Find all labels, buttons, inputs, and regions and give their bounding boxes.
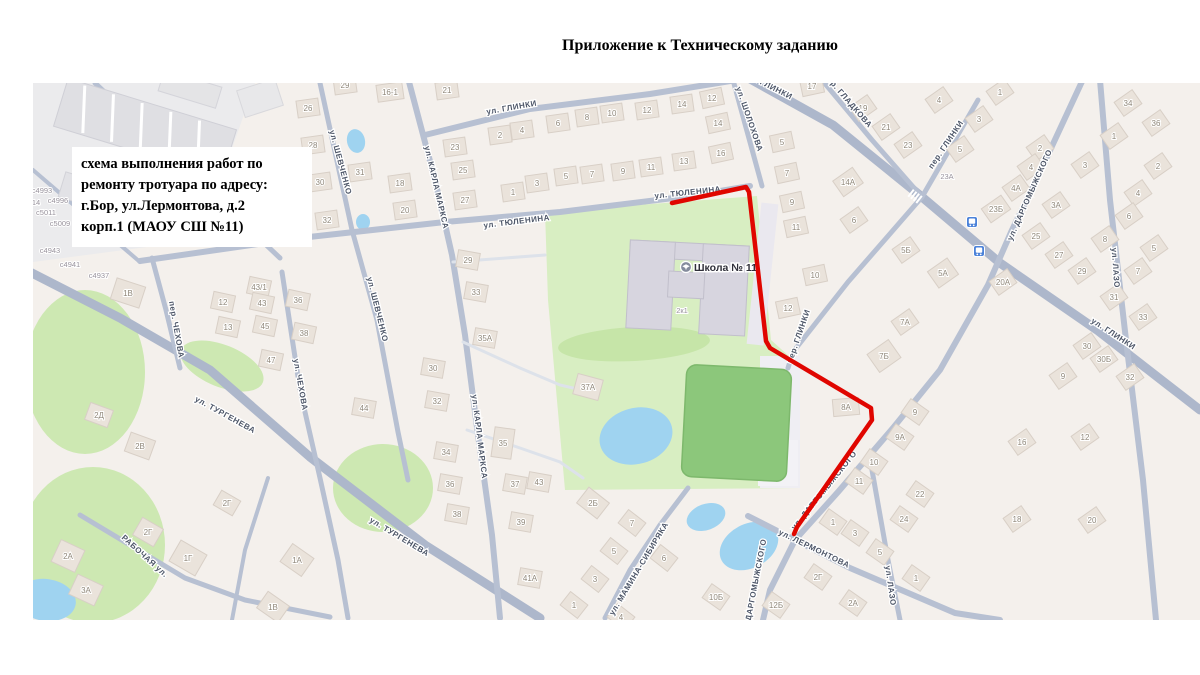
building-number: 23Б [989, 205, 1003, 214]
building-number: 35 [499, 439, 508, 448]
building-number: 37А [581, 383, 596, 392]
building-number: 2Г [814, 573, 823, 582]
building-number: 36 [446, 480, 455, 489]
building-number: 30 [429, 364, 438, 373]
building-number: 20А [996, 278, 1011, 287]
building-number: 7 [630, 519, 635, 528]
building-number: 21 [882, 123, 891, 132]
building-number: 8 [1103, 235, 1108, 244]
building-number: 3 [593, 575, 598, 584]
area-label: с5011 [36, 208, 56, 217]
building-number: 12Б [769, 601, 783, 610]
building-number: 32 [323, 216, 332, 225]
building-number: 26 [304, 104, 313, 113]
building-number: 5А [938, 269, 948, 278]
document-title: Приложение к Техническому заданию [200, 37, 1200, 55]
building-number: 37 [511, 480, 520, 489]
building-number: 12 [1081, 433, 1090, 442]
building-number: 5 [564, 172, 569, 181]
building-number: 8 [585, 113, 590, 122]
building-number: 27 [1055, 251, 1064, 260]
building-number: 32 [1126, 373, 1135, 382]
building-number: 25 [459, 166, 468, 175]
area-label: с4996 [48, 196, 68, 205]
building-number: 2Г [144, 528, 153, 537]
building-number: 23 [904, 141, 913, 150]
note-line: г.Бор, ул.Лермонтова, д.2 [81, 196, 303, 217]
building-number: 5Б [901, 246, 911, 255]
building-number: 2 [1038, 144, 1043, 153]
building-number: 29 [464, 256, 473, 265]
building-number: 10 [870, 458, 879, 467]
building-number: 1 [998, 88, 1003, 97]
sports-field [681, 364, 792, 481]
building-number: 24 [900, 515, 909, 524]
building-number: 34 [1124, 99, 1133, 108]
building-number: 16 [1018, 438, 1027, 447]
bus-stop-icon [974, 246, 985, 257]
bus-stop-icon [967, 217, 978, 228]
building-number: 45 [261, 322, 270, 331]
school-label: Школа № 11 [694, 262, 757, 274]
building-number: 16 [717, 149, 726, 158]
building-number: 1 [1112, 132, 1117, 141]
building-number: 7 [1136, 267, 1141, 276]
building-number: 6 [1127, 212, 1132, 221]
building-number: 27 [461, 196, 470, 205]
building-number: 2А [63, 552, 73, 561]
building-number: 39 [517, 518, 526, 527]
document-page: Приложение к Техническому заданию [0, 0, 1200, 675]
note-line: ремонту тротуара по адресу: [81, 175, 303, 196]
building-number: 2В [135, 442, 145, 451]
building-number: 43 [258, 299, 267, 308]
building-number: 32 [433, 397, 442, 406]
area-label: с4941 [60, 260, 80, 269]
building-number: 1 [511, 188, 516, 197]
building-number: 43 [535, 478, 544, 487]
building-number: 9 [1061, 372, 1066, 381]
building-number: 20 [401, 206, 410, 215]
building-number: 23 [451, 143, 460, 152]
building-number: 36 [1152, 119, 1161, 128]
building-number: 10 [811, 271, 820, 280]
building-number: 9 [621, 167, 626, 176]
building-number: 2А [848, 599, 858, 608]
area-label: 23А [940, 172, 953, 181]
building-number: 11 [855, 477, 864, 486]
note-line: корп.1 (МАОУ СШ №11) [81, 217, 303, 238]
building-number: 33 [472, 288, 481, 297]
building-number: 17 [808, 83, 817, 91]
building-number: 25 [1032, 232, 1041, 241]
building-number: 10Б [709, 593, 723, 602]
building-number: 13 [224, 323, 233, 332]
building-number: 18 [396, 179, 405, 188]
building-number: 35А [478, 334, 493, 343]
building-number: 44 [360, 404, 369, 413]
building-number: 14 [714, 119, 723, 128]
building-number: 7 [590, 170, 595, 179]
building-number: 34 [442, 448, 451, 457]
building-number: 29 [1078, 267, 1087, 276]
building-number: 3А [1051, 201, 1061, 210]
building-number: 12 [219, 298, 228, 307]
building-number: 30Б [1097, 355, 1111, 364]
building-number: 9 [790, 198, 795, 207]
building-number: 2 [498, 131, 503, 140]
building-number: 6 [556, 119, 561, 128]
area-label: с4993 [33, 186, 52, 195]
school-icon [681, 262, 692, 273]
building-number: 1 [572, 601, 577, 610]
building-number: 7Б [879, 352, 889, 361]
building-number: 3 [535, 179, 540, 188]
building-number: 1 [831, 518, 836, 527]
building-number: 7 [785, 169, 790, 178]
note-line: схема выполнения работ по [81, 154, 303, 175]
building-number: 3А [81, 586, 91, 595]
building-number: 14 [678, 100, 687, 109]
building-number: 12 [643, 106, 652, 115]
work-description-note: схема выполнения работ по ремонту тротуа… [72, 147, 312, 247]
building-number: 3 [853, 529, 858, 538]
building-number: 31 [356, 168, 365, 177]
building-number: 14А [841, 178, 856, 187]
building-number: 16-1 [382, 88, 399, 97]
building-number: 18 [1013, 515, 1022, 524]
building-number: 1Г [184, 554, 193, 563]
area-label: с5009 [50, 219, 70, 228]
map-container[interactable]: 26283032293116-1182021232527241357911136… [33, 83, 1200, 620]
building-number: 4 [520, 126, 525, 135]
building-number: 11 [647, 163, 656, 172]
building-number: 4 [619, 613, 624, 620]
building-number: 2 [1156, 162, 1161, 171]
building-number: 12 [708, 94, 717, 103]
building-number: 4 [937, 96, 942, 105]
building-number: 2Д [94, 411, 104, 420]
building-number: 36 [294, 296, 303, 305]
building-number: 6 [662, 554, 667, 563]
building-number: 30 [1083, 342, 1092, 351]
area-label: с4943 [40, 246, 60, 255]
building-number: 22 [916, 490, 925, 499]
building-number: 29 [341, 83, 350, 90]
building-number: 1В [123, 289, 133, 298]
building-number: 30 [316, 178, 325, 187]
building-number: 3 [977, 115, 982, 124]
building-number: 5 [612, 547, 617, 556]
building-number: 20 [1088, 516, 1097, 525]
building-number: 43/1 [251, 283, 267, 292]
building-number: 13 [680, 157, 689, 166]
building-number: 9А [895, 433, 905, 442]
area-label: 2к1 [676, 306, 688, 315]
building-number: 47 [267, 356, 276, 365]
area-label: с4937 [89, 271, 109, 280]
building-number: 5 [1152, 244, 1157, 253]
building-number: 38 [300, 329, 309, 338]
building-number: 2Г [223, 499, 232, 508]
building-number: 4 [1029, 163, 1034, 172]
building-number: 4 [1136, 189, 1141, 198]
building-number: 4А [1011, 184, 1021, 193]
building-number: 5 [878, 548, 883, 557]
building-number: 31 [1110, 293, 1119, 302]
building-number: 33 [1139, 313, 1148, 322]
building-number: 1А [292, 556, 302, 565]
area-label: 14 [33, 198, 40, 207]
building-number: 11 [792, 223, 801, 232]
building-number: 1 [914, 574, 919, 583]
building-number: 38 [453, 510, 462, 519]
building-number: 10 [608, 109, 617, 118]
building-number: 3 [1083, 161, 1088, 170]
building-number: 12 [784, 304, 793, 313]
building-number: 2Б [588, 499, 598, 508]
building-number: 7А [900, 318, 910, 327]
building-number: 6 [852, 216, 857, 225]
building-number: 21 [443, 86, 452, 95]
building-number: 8А [841, 403, 851, 412]
building-number: 5 [958, 145, 963, 154]
building-number: 5 [780, 138, 785, 147]
building-number: 9 [913, 408, 918, 417]
building-number: 41А [523, 574, 538, 583]
building-number: 1В [268, 603, 278, 612]
